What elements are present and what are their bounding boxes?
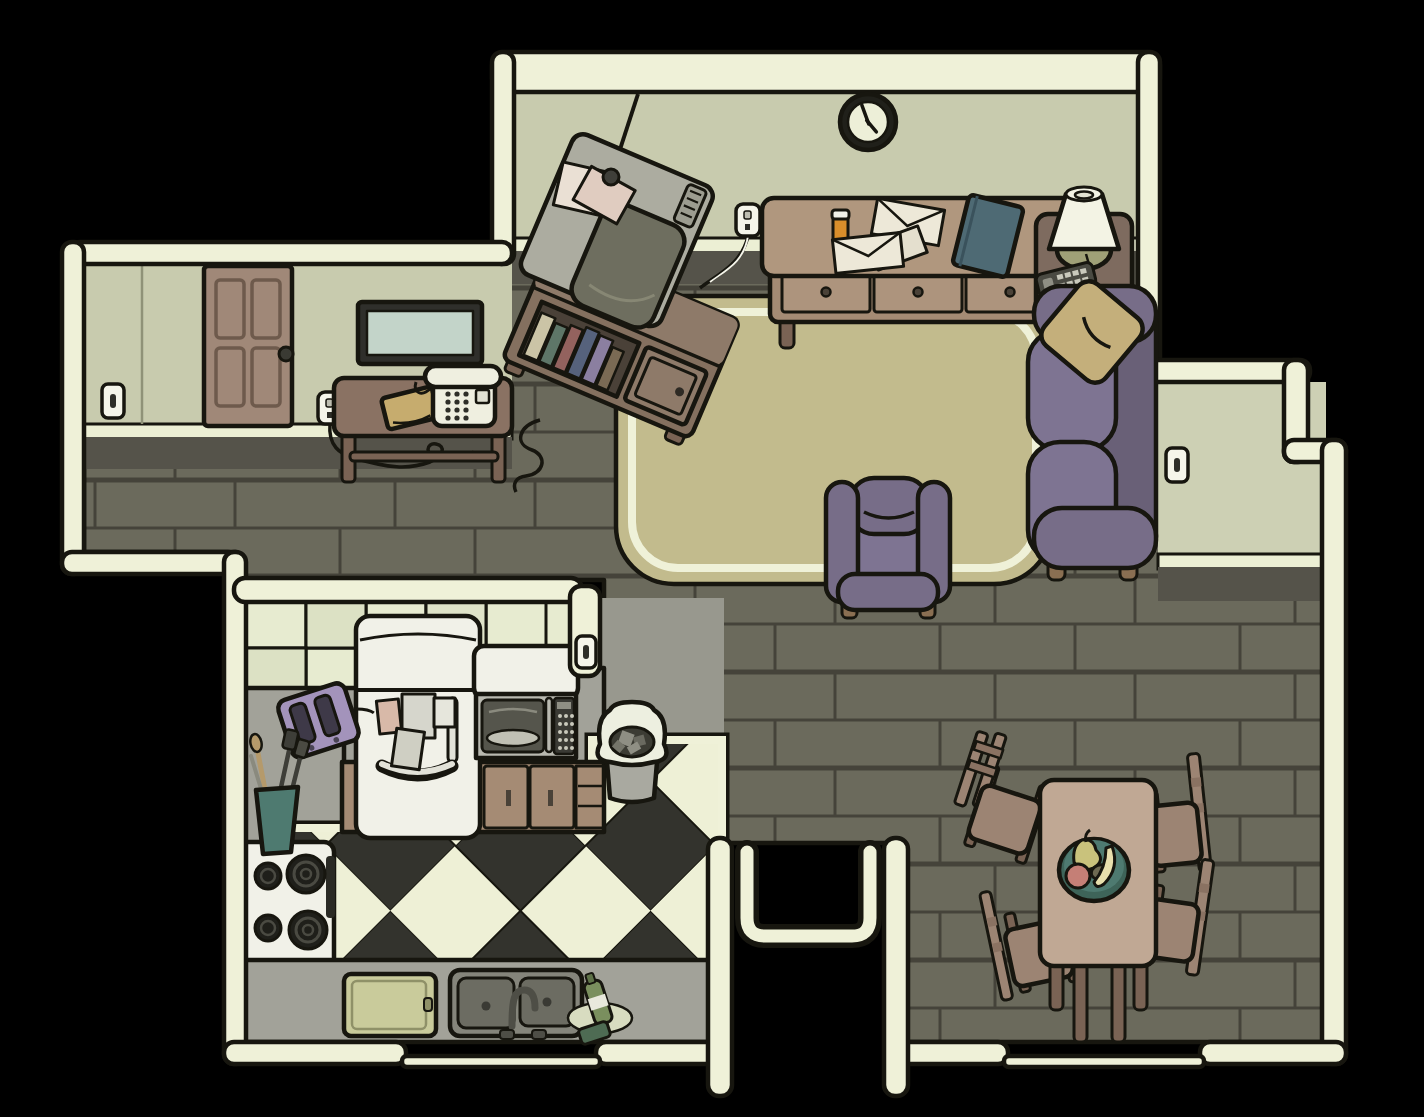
light-switch-wing[interactable]: Light switch xyxy=(1166,448,1188,482)
wall-dining-bottom-right xyxy=(1200,1042,1346,1064)
wall-living-top xyxy=(492,52,1160,92)
stove[interactable]: Electric stove top xyxy=(238,842,335,970)
trash-can[interactable]: Trash can xyxy=(598,702,667,802)
apartment-floorplan: Wood plank floor Living room area rug Ti… xyxy=(0,0,1424,1117)
apartment-door[interactable]: Apartment door xyxy=(204,266,293,426)
sofa-arm-bottom xyxy=(1034,508,1156,568)
wall-kitchen-left xyxy=(224,552,246,1064)
door-knob[interactable] xyxy=(279,347,293,361)
antenna-base xyxy=(603,169,619,185)
wall-hall-top xyxy=(70,242,512,264)
armchair-base xyxy=(838,574,938,610)
light-switch-kitchen[interactable]: Light switch xyxy=(576,636,596,668)
wall-hall-left xyxy=(62,242,84,574)
game-scene: Wood plank floor Living room area rug Ti… xyxy=(0,0,1424,1117)
kitchen-sink[interactable]: Double kitchen sink xyxy=(450,970,582,1039)
refrigerator[interactable]: Refrigerator Notes on fridge xyxy=(356,616,480,838)
wall-mirror[interactable]: Wall mirror xyxy=(358,302,482,364)
microwave[interactable]: Microwave oven xyxy=(474,646,578,758)
passage-to-entry: Passage to entry xyxy=(708,838,908,1096)
microwave-keypad[interactable] xyxy=(554,698,574,754)
wall-hall-bottom xyxy=(62,552,238,574)
sofa[interactable]: Purple sofa Throw pillow xyxy=(1028,276,1156,580)
wall-kitchen-bottom-left xyxy=(224,1042,406,1064)
armchair[interactable]: Purple armchair xyxy=(826,478,950,618)
wall-living-left xyxy=(492,52,514,264)
wall-clock[interactable]: Wall clock xyxy=(840,94,896,150)
pill-bottle[interactable]: Pill bottle xyxy=(832,210,849,241)
apple xyxy=(1066,864,1090,888)
wall-dining-right xyxy=(1322,440,1346,1064)
light-switch-hall[interactable]: Light switch xyxy=(102,384,124,418)
kitchen-door-threshold xyxy=(402,1056,600,1067)
dining-door-threshold xyxy=(1004,1056,1204,1067)
phone-handset[interactable] xyxy=(425,366,501,387)
wall-kitchen-bottom-right xyxy=(596,1042,722,1064)
wall-kitchen-top xyxy=(234,578,582,602)
cutting-board[interactable]: Cutting board xyxy=(344,974,436,1036)
